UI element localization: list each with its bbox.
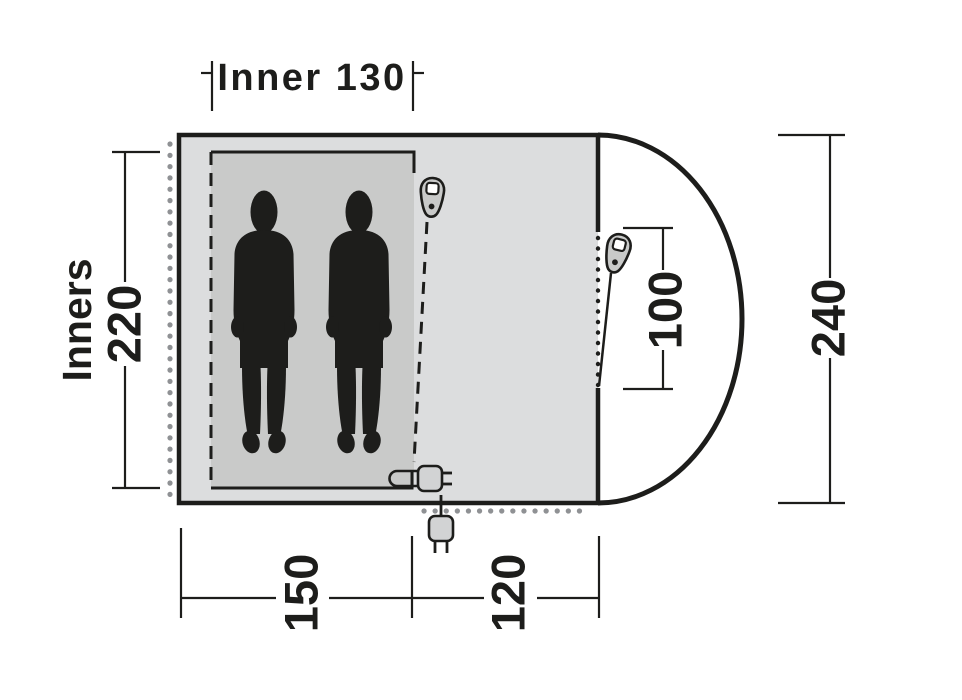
dim-label-inner-length: 220 bbox=[98, 285, 151, 363]
dim-label-inner-depth: 150 bbox=[275, 554, 328, 632]
dim-label-outer-length: 240 bbox=[802, 279, 855, 357]
dim-label-door-height: 100 bbox=[639, 271, 692, 349]
dim-label-porch-depth: 120 bbox=[482, 554, 535, 632]
inners-title: Inners bbox=[54, 258, 100, 381]
dim-bottom bbox=[181, 528, 599, 618]
dim-label-inner-width: Inner 130 bbox=[217, 57, 406, 99]
tent-floorplan-diagram: Inner 130 220 Inners 240 100 150 120 bbox=[0, 0, 962, 700]
floorplan-canvas: Inner 130 220 Inners 240 100 150 120 bbox=[0, 0, 962, 700]
